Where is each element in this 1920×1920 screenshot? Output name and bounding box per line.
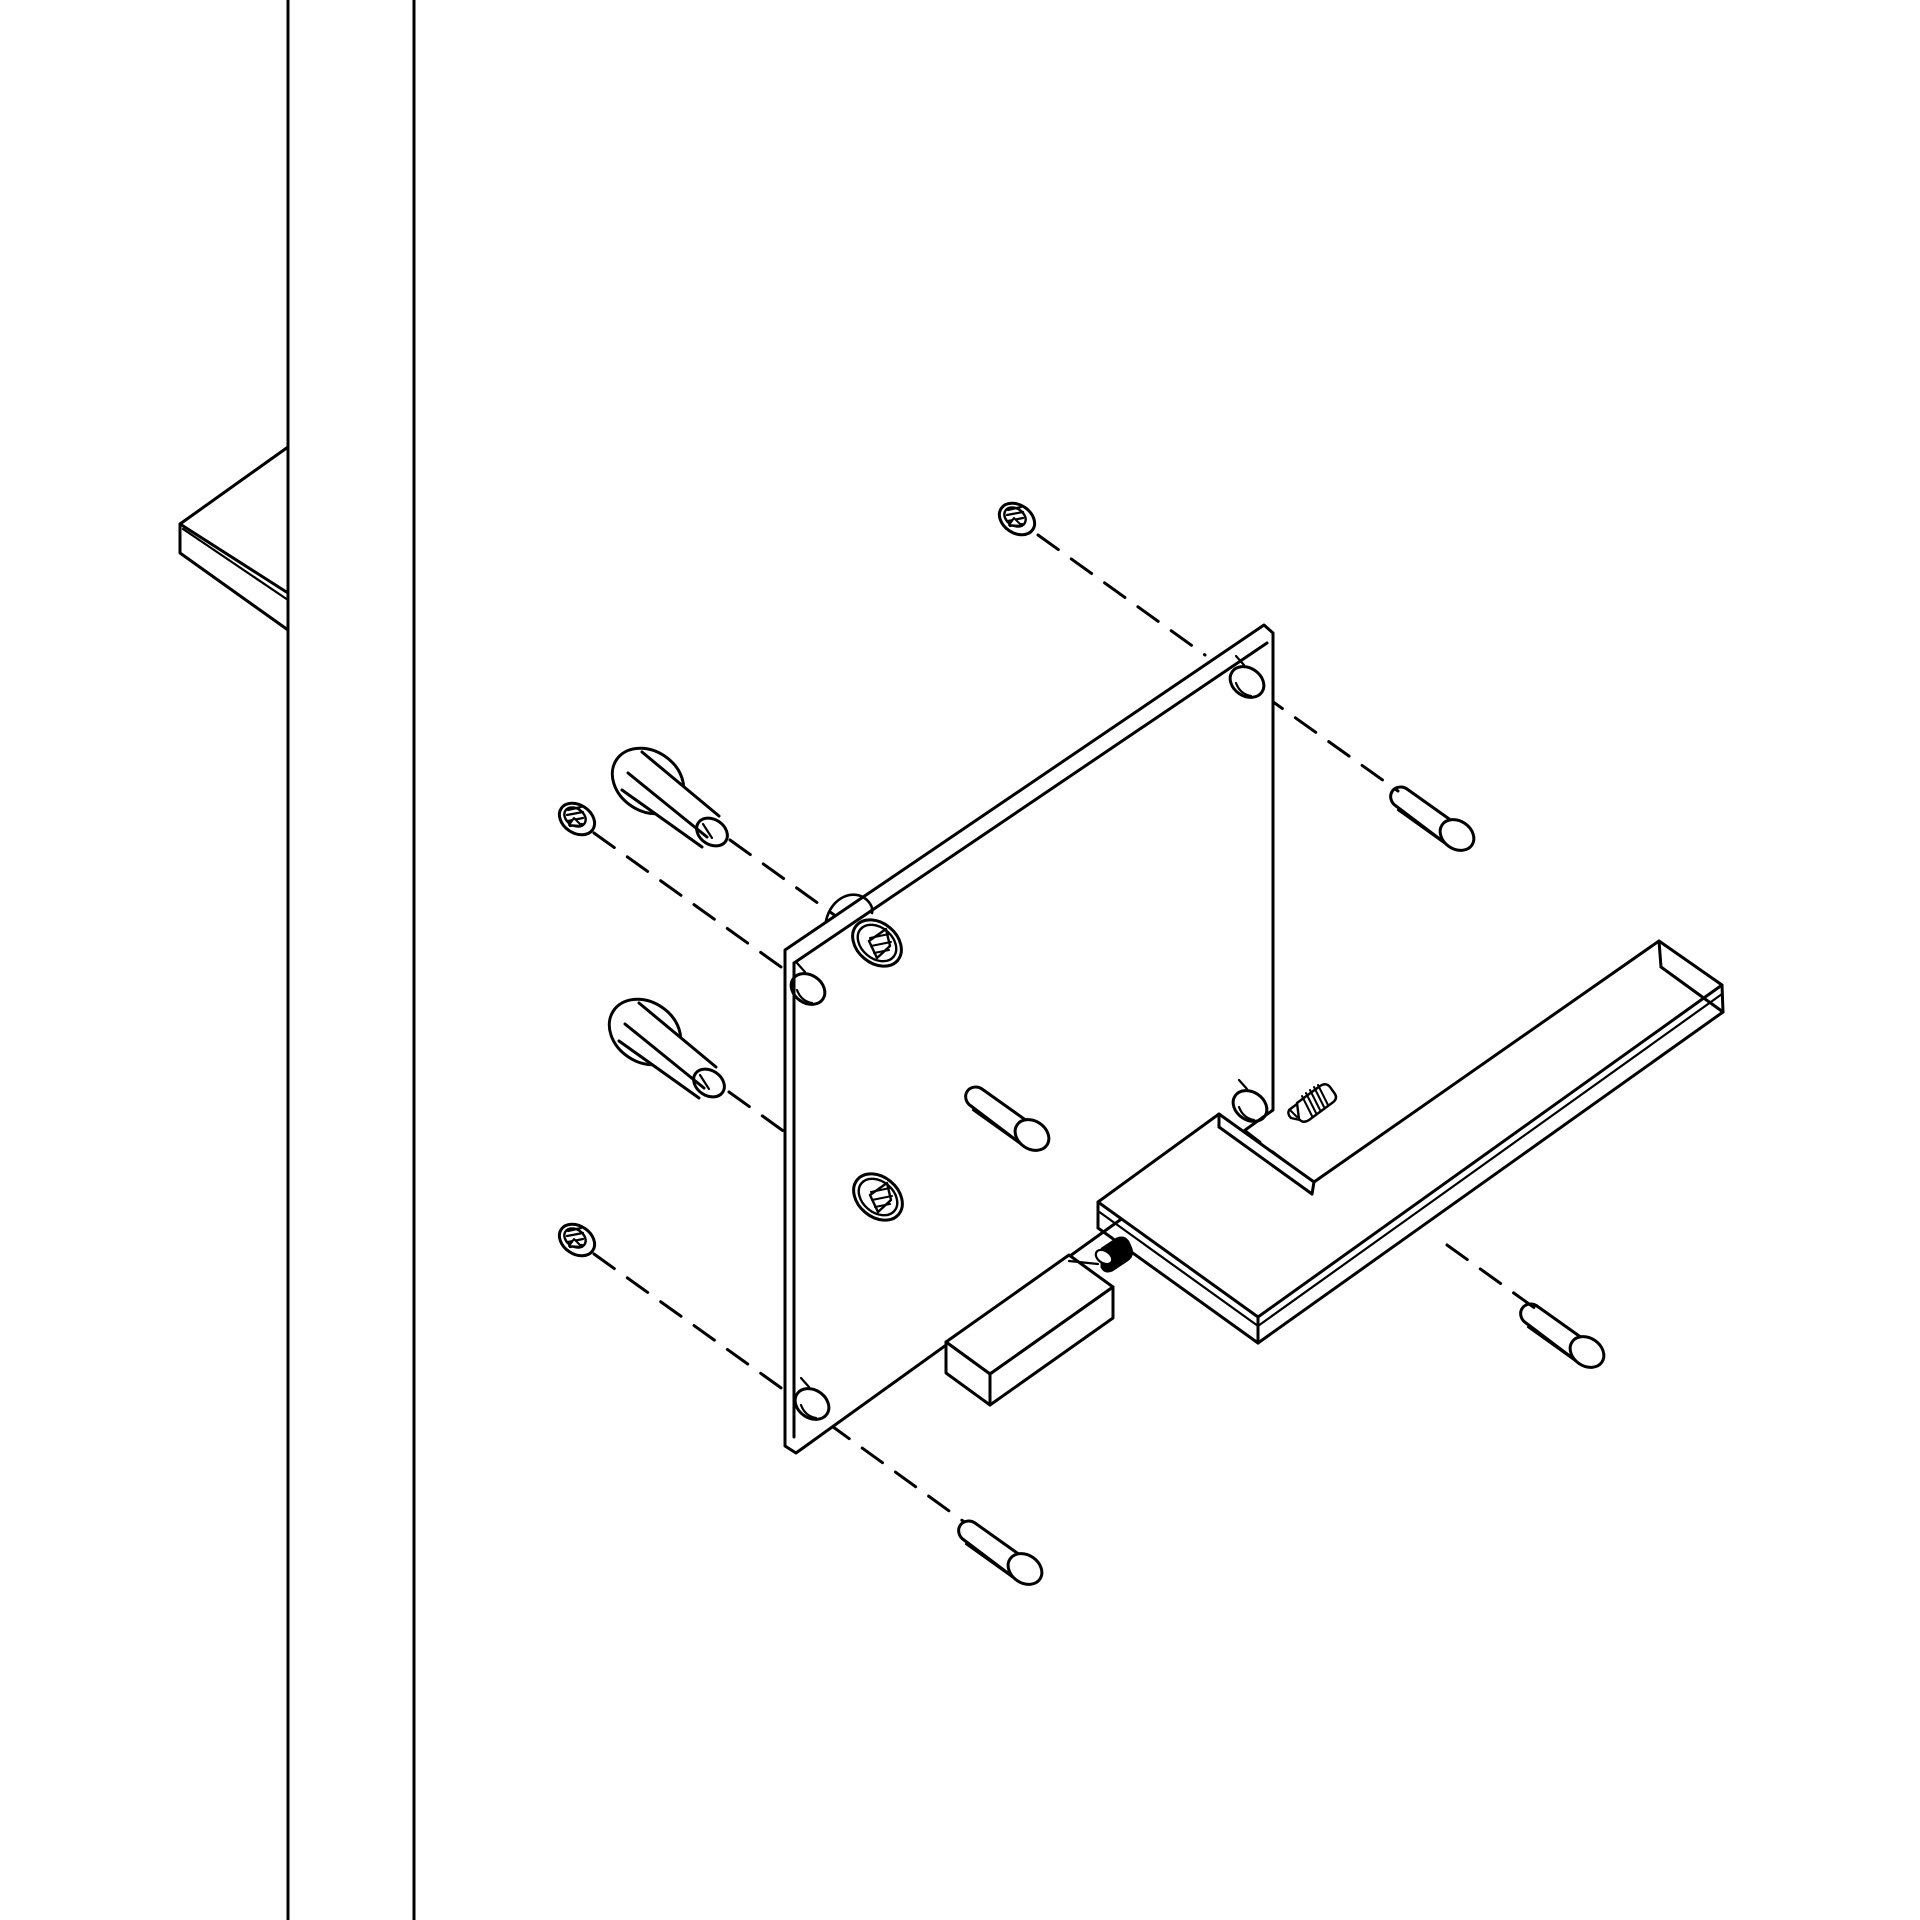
connecting-bolt-upper: [600, 735, 733, 852]
flat-head-screw-top: [993, 497, 1040, 541]
sleeve-nut-pin-bottom: [959, 1521, 1048, 1591]
door-edge: [288, 0, 414, 1920]
strike-plate-corner: [180, 447, 288, 630]
sleeve-nut-pin-right: [1521, 1304, 1610, 1374]
exploded-view-drawing: [0, 0, 1920, 1920]
connecting-bolt-lower: [597, 986, 730, 1103]
assembly-diagram: [0, 0, 1920, 1920]
flat-head-screw-left-lower: [553, 1218, 600, 1262]
sleeve-nut-pin-top: [1391, 787, 1480, 857]
lever-grub-screw: [1288, 1084, 1336, 1122]
flat-head-screw-left-upper: [553, 797, 600, 841]
